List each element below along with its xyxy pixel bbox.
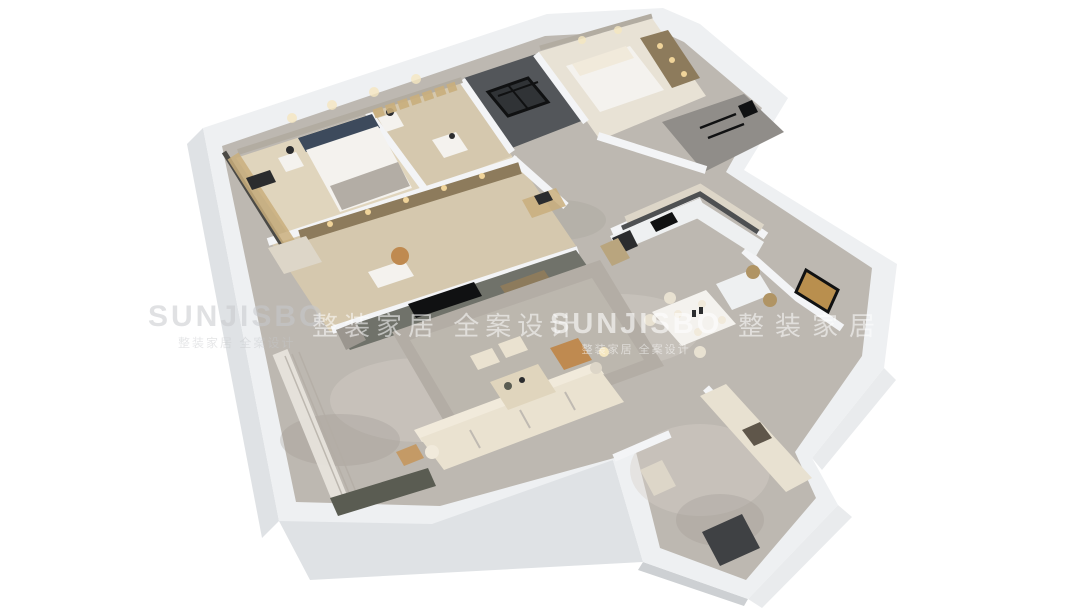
spotlight-glow (614, 26, 622, 34)
spotlight-glow (287, 113, 297, 123)
table-lamp (286, 146, 294, 154)
screenshot-root: SUNJISBO 整装家居 全案设计 整装家居 全案设计 SUNJISBO 整装… (0, 0, 1080, 608)
shelf-light (669, 57, 675, 63)
spotlight-glow (369, 87, 379, 97)
place-setting (698, 300, 706, 308)
shelf-light (327, 221, 333, 227)
shelf-light (441, 185, 447, 191)
shelf-light (403, 197, 409, 203)
side-table (590, 362, 602, 374)
floor-lamp (425, 445, 439, 459)
table-lamp (599, 347, 609, 357)
spotlight-glow (327, 100, 337, 110)
place-setting (718, 316, 726, 324)
marble-patch (280, 414, 400, 466)
floorplan-render (0, 0, 1080, 608)
dining-chair (644, 314, 656, 326)
place-setting (674, 310, 682, 318)
table-decor (519, 377, 525, 383)
shelf-light (681, 71, 687, 77)
shelf-light (657, 43, 663, 49)
dining-chair (694, 346, 706, 358)
vanity-mirror (449, 133, 455, 139)
table-decor-plant (504, 382, 512, 390)
wine-bottles (692, 310, 696, 317)
dining-chair (664, 292, 676, 304)
rattan-chair (763, 293, 777, 307)
place-setting (694, 328, 702, 336)
spotlight-glow (578, 36, 586, 44)
wine-bottles (699, 307, 703, 314)
spotlight-glow (411, 74, 421, 84)
office-chair (391, 247, 409, 265)
rattan-chair (746, 265, 760, 279)
shelf-light (479, 173, 485, 179)
shelf-light (365, 209, 371, 215)
